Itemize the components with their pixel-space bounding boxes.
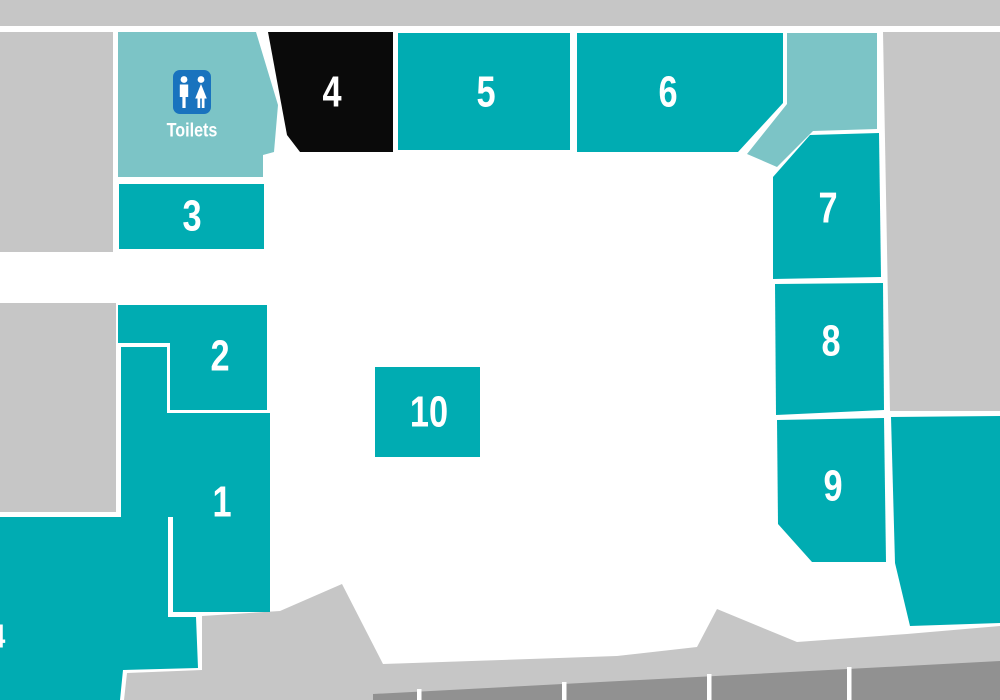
toilets-label: Toilets [167,119,218,141]
unit-partial-4-label: 4 [0,619,6,655]
unit-7-label: 7 [818,183,837,232]
floor-plan-map: 4 1 2 3 Toilets 4 5 [0,0,1000,700]
gray-top-band [0,0,1000,26]
unit-5-label: 5 [476,67,495,116]
unit-right-unlabeled[interactable] [891,416,1000,626]
unit-6[interactable]: 6 [577,33,783,152]
unit-3-label: 3 [182,191,201,240]
unit-2-label: 2 [210,331,229,380]
unit-10[interactable]: 10 [375,367,480,457]
woman-figure-leg [198,99,201,109]
gray-block-mid-left [0,303,116,512]
restroom-icon [173,70,211,114]
gray-block-upper-left [0,32,113,252]
woman-figure [198,76,205,83]
unit-6-label: 6 [658,67,677,116]
bay-divider [562,682,567,700]
woman-figure-leg [202,99,205,109]
bay-divider [417,689,422,700]
floor-plan-svg: 4 1 2 3 Toilets 4 5 [0,0,1000,700]
unit-9[interactable]: 9 [777,418,886,562]
bay-divider [707,674,712,700]
unit-8-label: 8 [821,316,840,365]
unit-4-label: 4 [322,67,341,116]
unit-10-label: 10 [410,387,448,436]
unit-1-label: 1 [212,477,231,526]
unit-5[interactable]: 5 [398,33,570,150]
unit-8[interactable]: 8 [775,283,884,415]
man-figure [181,76,188,83]
toilets-area[interactable]: Toilets [118,32,278,177]
gray-block-right [883,32,1000,411]
bay-divider [847,667,852,700]
unit-9-label: 9 [823,461,842,510]
unit-3[interactable]: 3 [119,184,264,249]
